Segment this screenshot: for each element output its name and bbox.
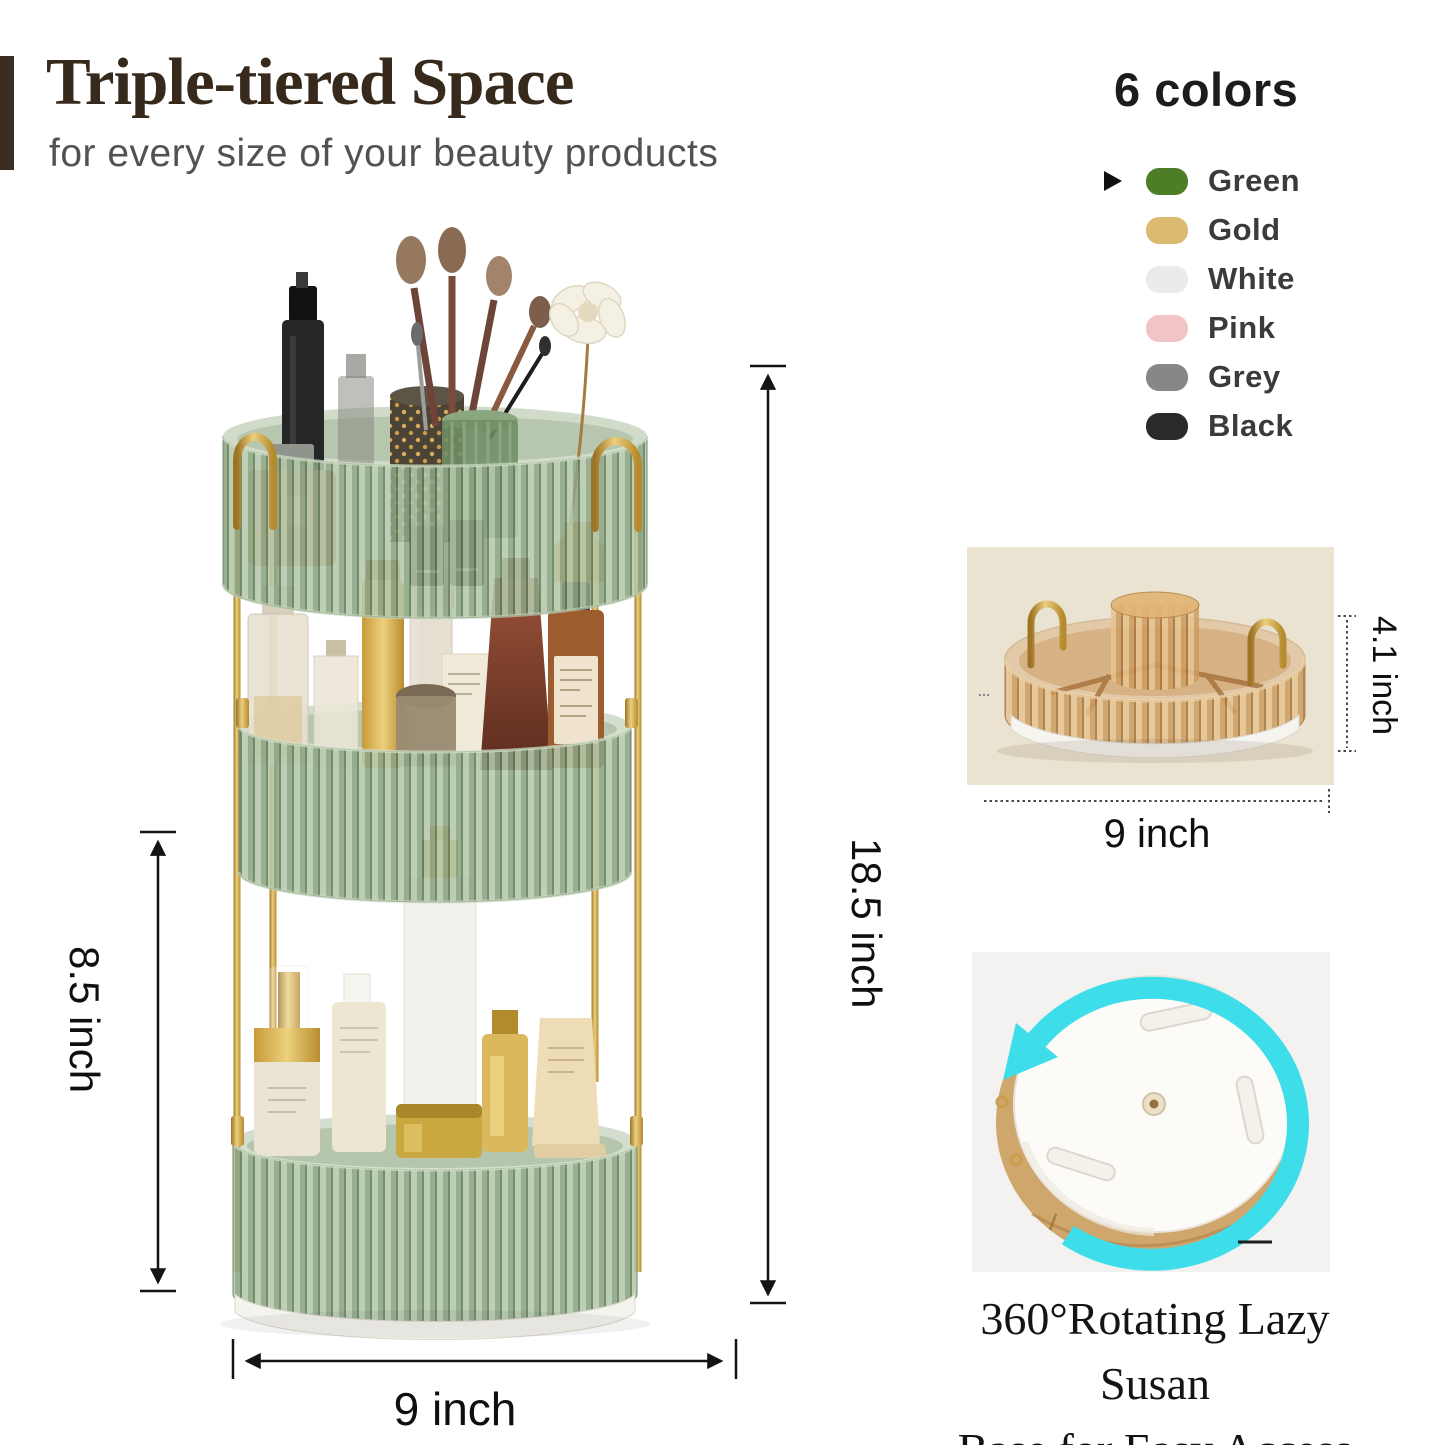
color-option-grey: Grey (1146, 363, 1281, 391)
tray-detail-photo (967, 547, 1334, 785)
color-option-black: Black (1146, 412, 1293, 440)
color-swatch-grey (1146, 364, 1188, 391)
color-label: Pink (1208, 310, 1275, 346)
color-label: Green (1208, 163, 1300, 199)
color-swatch-black (1146, 413, 1188, 440)
main-width-label: 9 inch (335, 1382, 575, 1436)
total-height-label: 18.5 inch (842, 838, 890, 1008)
color-label: Black (1208, 408, 1293, 444)
color-label: Gold (1208, 212, 1281, 248)
color-option-pink: Pink (1146, 314, 1275, 342)
color-option-green: Green (1146, 167, 1300, 195)
infographic-canvas: Triple-tiered Space for every size of yo… (0, 0, 1445, 1445)
color-swatch-green (1146, 168, 1188, 195)
color-swatch-white (1146, 266, 1188, 293)
color-option-white: White (1146, 265, 1295, 293)
main-product-photo (190, 226, 690, 1346)
base-caption-line1: 360°Rotating Lazy Susan (925, 1286, 1385, 1417)
color-swatch-pink (1146, 315, 1188, 342)
tier1 (223, 227, 647, 618)
base-caption: 360°Rotating Lazy Susan Base for Easy Ac… (925, 1286, 1385, 1445)
color-swatch-gold (1146, 217, 1188, 244)
page-title: Triple-tiered Space (46, 44, 573, 121)
color-option-gold: Gold (1146, 216, 1281, 244)
base-photo (972, 952, 1330, 1272)
colors-heading: 6 colors (1114, 62, 1298, 117)
tray-height-label: 4.1 inch (1364, 616, 1403, 735)
accent-bar (0, 56, 14, 170)
color-label: White (1208, 261, 1295, 297)
page-subtitle: for every size of your beauty products (49, 132, 718, 176)
tray-width-label: 9 inch (1037, 812, 1277, 857)
color-label: Grey (1208, 359, 1281, 395)
tier-height-label: 8.5 inch (60, 946, 108, 1093)
selected-arrow-icon (1104, 171, 1122, 191)
base-caption-line2: Base for Easy Access (925, 1417, 1385, 1445)
